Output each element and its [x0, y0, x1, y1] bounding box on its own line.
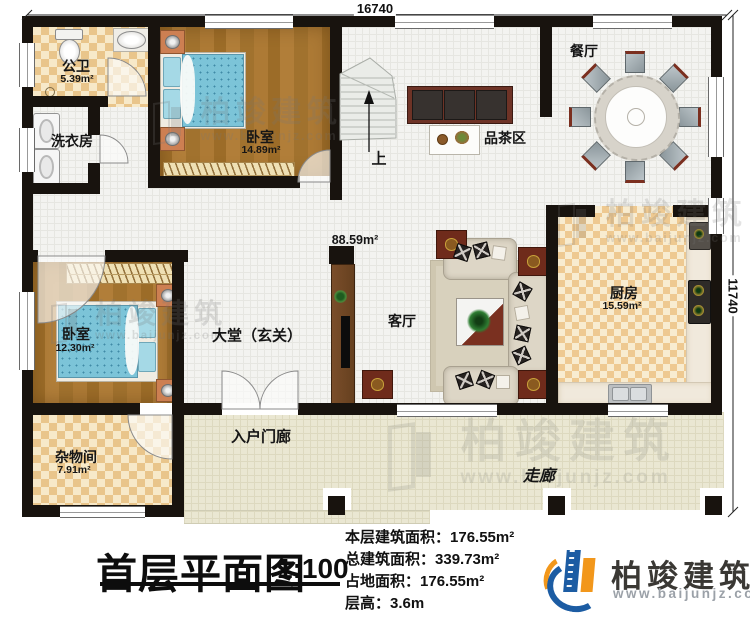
brand-logo: 柏竣建筑 www.baijunjz.com [543, 548, 748, 608]
floor-plan-canvas: 柏竣建筑 www.baijunjz.com 柏竣建筑 www.baijunjz.… [0, 0, 750, 617]
room-label-lobby: 大堂（玄关） [212, 325, 302, 346]
stat-label: 总建筑面积： [345, 551, 435, 568]
watermark-text: 柏竣建筑 [201, 98, 343, 128]
stat-floor-built-area: 本层建筑面积：176.55m² [345, 527, 514, 549]
entry-door-left [222, 371, 260, 409]
brand-url: www.baijunjz.com [613, 586, 750, 601]
watermark-text: 柏竣建筑 [606, 200, 748, 230]
watermark: 柏竣建筑 www.baijunjz.com [553, 200, 747, 248]
room-label-tea-area: 品茶区 [484, 128, 526, 148]
stat-label: 层高： [345, 595, 390, 612]
stairs-direction-label: 上 [371, 148, 386, 169]
door-storage [128, 415, 172, 459]
stat-label: 占地面积： [345, 573, 420, 590]
room-area-bedroom-left: 12.30m² [55, 342, 94, 354]
stat-value: 176.55m² [420, 573, 484, 590]
watermark-url: www.baijunjz.com [606, 230, 748, 248]
stat-floor-height: 层高：3.6m [345, 593, 514, 615]
watermark-building-icon [380, 420, 449, 489]
room-label-corridor: 走廊 [523, 462, 555, 486]
title-underline [100, 582, 340, 586]
room-label-dining: 餐厅 [570, 41, 598, 61]
door-laundry [100, 135, 128, 163]
room-label-laundry: 洗衣房 [51, 131, 93, 151]
watermark-text: 柏竣建筑 [461, 418, 678, 464]
stats-block: 本层建筑面积：176.55m² 总建筑面积：339.73m² 占地面积：176.… [345, 527, 514, 615]
watermark-url: www.baijunjz.com [95, 328, 227, 344]
dimension-top-value: 16740 [354, 1, 396, 16]
stat-footprint-area: 占地面积：176.55m² [345, 571, 514, 593]
room-area-bedroom-top: 14.89m² [241, 144, 280, 156]
stat-value: 339.73m² [435, 551, 499, 568]
watermark-building-icon [148, 99, 193, 144]
room-label-living: 客厅 [388, 311, 416, 331]
staircase [340, 58, 396, 152]
stat-value: 176.55m² [450, 529, 514, 546]
open-area-label: 88.59m² [332, 233, 379, 247]
watermark-text: 柏竣建筑 [95, 300, 227, 328]
stat-label: 本层建筑面积： [345, 529, 450, 546]
room-area-kitchen: 15.59m² [602, 300, 641, 312]
watermark-url: www.baijunjz.com [461, 464, 678, 491]
logo-building-icon [543, 548, 605, 604]
room-label-bedroom-left: 卧室 [62, 324, 90, 344]
page-title: 首层平面图 [96, 540, 306, 600]
entry-door-right [260, 371, 298, 409]
room-label-porch: 入户门廊 [231, 426, 291, 447]
stat-total-built-area: 总建筑面积：339.73m² [345, 549, 514, 571]
door-bathroom [108, 58, 146, 96]
stat-value: 3.6m [390, 595, 424, 612]
dimension-right-value: 11740 [726, 275, 741, 316]
room-area-bathroom: 5.39m² [60, 73, 93, 85]
room-area-storage: 7.91m² [57, 464, 90, 476]
door-bedroom-top [298, 150, 330, 182]
plan-scale: 1:100 [277, 553, 349, 585]
watermark-building-icon [553, 201, 598, 246]
